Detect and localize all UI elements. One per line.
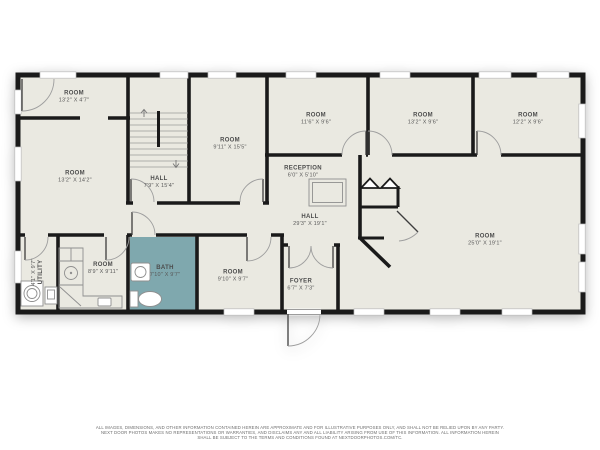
room-h-dims: 9'10" X 9'7" (218, 277, 248, 283)
room-a-name: ROOM (64, 91, 84, 97)
reception-dims: 6'0" X 5'10" (288, 173, 318, 179)
utility-dims: 4'1" X 9'7" (31, 258, 37, 285)
room-c-dims: 9'11" X 15'5" (213, 145, 246, 151)
room-label-reception: RECEPTION 6'0" X 5'10" (284, 166, 322, 179)
foyer-dims: 6'7" X 7'3" (287, 286, 314, 292)
room-c-name: ROOM (220, 138, 240, 144)
hall-dims: 29'3" X 19'1" (293, 221, 327, 227)
room-g-dims: 25'0" X 19'1" (468, 241, 502, 247)
floor-plan-body: ROOM 13'2" X 4'7" ROOM 13'2" X 14'2" HAL… (15, 72, 585, 346)
toilet-bowl-icon (139, 292, 162, 307)
kitchen-name: ROOM (93, 262, 113, 268)
disclaimer-line-3: SHALL BE SUBJECT TO THE TERMS AND CONDIT… (197, 435, 402, 440)
reception-name: RECEPTION (284, 166, 322, 172)
room-e-name: ROOM (413, 113, 433, 119)
bath-sink-icon (131, 263, 150, 281)
entry-opening (287, 309, 321, 316)
door-entry (288, 314, 320, 346)
room-b-name: ROOM (65, 171, 85, 177)
room-label-foyer: FOYER 6'7" X 7'3" (287, 279, 314, 292)
room-e-dims: 13'2" X 9'6" (408, 120, 438, 126)
floor-area (18, 75, 583, 312)
room-d-name: ROOM (306, 113, 326, 119)
room-h-name: ROOM (223, 270, 243, 276)
kitchen-sink-icon (98, 298, 111, 306)
stair-hall-name: HALL (150, 176, 167, 182)
room-b-dims: 13'2" X 14'2" (58, 178, 92, 184)
utility-sink-icon (45, 287, 57, 304)
toilet-tank-icon (130, 291, 138, 307)
bath-dims: 7'10" X 9'7" (150, 272, 180, 278)
stair-hall-dims: 7'9" X 15'4" (144, 183, 174, 189)
room-f-dims: 12'2" X 9'6" (513, 120, 543, 126)
kitchen-dims: 8'9" X 9'11" (88, 269, 118, 275)
room-a-dims: 13'2" X 4'7" (59, 98, 89, 104)
room-f-name: ROOM (518, 113, 538, 119)
foyer-name: FOYER (290, 279, 313, 285)
floor-plan-page: ROOM 13'2" X 4'7" ROOM 13'2" X 14'2" HAL… (0, 0, 600, 450)
utility-name: UTILITY (38, 260, 44, 285)
room-g-name: ROOM (475, 234, 495, 240)
room-d-dims: 11'6" X 9'6" (301, 120, 331, 126)
disclaimer: ALL IMAGES, DIMENSIONS, AND OTHER INFORM… (96, 425, 504, 440)
hall-name: HALL (301, 214, 318, 220)
room-label-utility: UTILITY 4'1" X 9'7" (31, 258, 44, 285)
bath-name: BATH (156, 265, 173, 271)
floor-plan-image: ROOM 13'2" X 4'7" ROOM 13'2" X 14'2" HAL… (0, 0, 600, 450)
